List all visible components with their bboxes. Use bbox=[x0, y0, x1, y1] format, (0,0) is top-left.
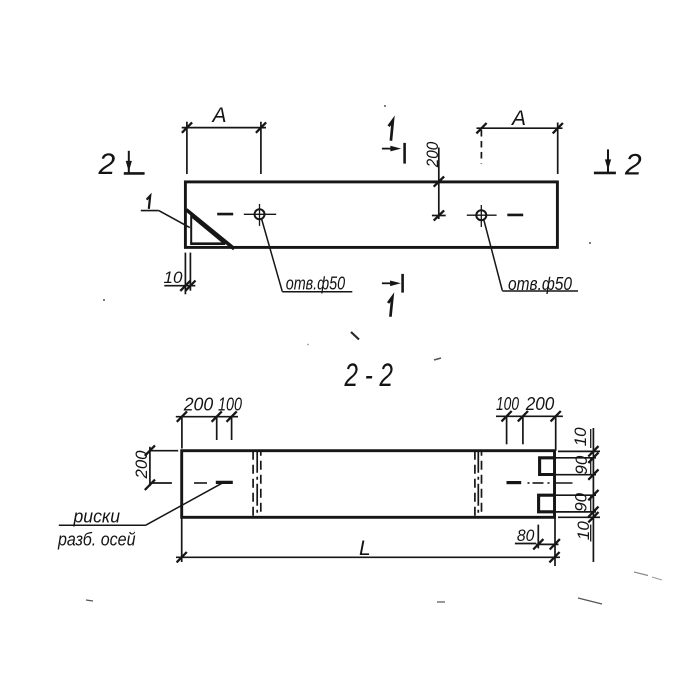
svg-text:200: 200 bbox=[132, 450, 151, 480]
svg-text:риски: риски bbox=[73, 507, 120, 527]
svg-text:200: 200 bbox=[525, 394, 555, 414]
svg-text:10: 10 bbox=[571, 427, 590, 446]
svg-text:2: 2 bbox=[624, 148, 642, 181]
svg-text:80: 80 bbox=[517, 526, 535, 545]
svg-text:200: 200 bbox=[183, 394, 213, 414]
svg-text:100: 100 bbox=[496, 394, 519, 414]
svg-text:отв.ф50: отв.ф50 bbox=[286, 274, 346, 294]
svg-text:A: A bbox=[211, 104, 227, 127]
svg-text:отв.ф50: отв.ф50 bbox=[508, 274, 572, 294]
svg-text:90: 90 bbox=[572, 492, 591, 511]
svg-text:2 - 2: 2 - 2 bbox=[344, 357, 393, 393]
svg-text:разб. осей: разб. осей bbox=[57, 530, 135, 550]
svg-text:90: 90 bbox=[572, 455, 591, 474]
svg-text:L: L bbox=[359, 537, 371, 560]
svg-text:2: 2 bbox=[98, 148, 116, 181]
svg-text:10: 10 bbox=[574, 521, 593, 540]
svg-text:10: 10 bbox=[164, 268, 183, 287]
svg-text:A: A bbox=[510, 107, 526, 130]
